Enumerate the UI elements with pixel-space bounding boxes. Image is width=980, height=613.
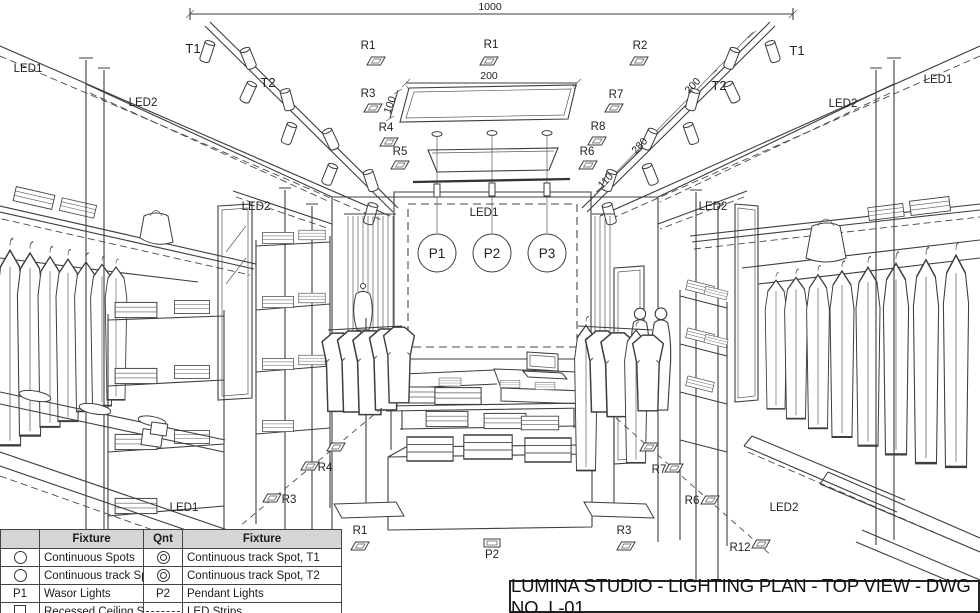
legend-header-cell: Fixture [183, 530, 342, 549]
callout-r12: R12 [729, 542, 750, 554]
recessed-spot-icon [391, 161, 409, 169]
legend-symbol-cell [144, 549, 183, 567]
callout-led2: LED2 [829, 98, 858, 110]
callout-r6: R6 [580, 146, 595, 158]
legend-fixture-cell: Pendant Lights [183, 585, 342, 603]
recessed-spot-icon [380, 138, 398, 146]
legend-symbol-cell [1, 549, 40, 567]
legend-symbol-cell: P2 [144, 585, 183, 603]
legend-row: Continuous track SpotsContinuous track S… [1, 567, 342, 585]
callout-t2: T2 [260, 75, 275, 90]
recessed-spot-icon [701, 496, 719, 504]
callout-led2: LED2 [770, 502, 799, 514]
recessed-spot-icon [301, 462, 319, 470]
lighting-plan-page: P1P2P3 1000200100200280110 LED1LED2T1T2R… [0, 0, 980, 613]
legend-fixture-cell: LED Strips [183, 603, 342, 613]
legend-fixture-cell: Recessed Ceiling Spot [40, 603, 144, 613]
legend-symbol-cell [144, 603, 183, 613]
recessed-spot-icon [617, 542, 635, 550]
legend-symbol-cell [1, 603, 40, 613]
legend-table: FixtureQntFixture Continuous SpotsContin… [0, 529, 342, 613]
legend-header-cell: Fixture [40, 530, 144, 549]
legend-row: Recessed Ceiling SpotLED Strips [1, 603, 342, 613]
callout-r1: R1 [484, 39, 499, 51]
pendant-label: P3 [539, 246, 556, 261]
dimension-texts: 1000200100200280110 [382, 1, 704, 191]
callout-led1: LED1 [470, 207, 499, 219]
legend-fixture-cell: Continuous Spots [40, 549, 144, 567]
callout-r4: R4 [318, 462, 333, 474]
left-spot-track [199, 22, 398, 226]
callout-r3: R3 [361, 88, 376, 100]
legend-header-cell [1, 530, 40, 549]
legend-symbol-cell: P1 [1, 585, 40, 603]
legend-fixture-cell: Continuous track Spot, T1 [183, 549, 342, 567]
left-garment-rack [322, 318, 414, 518]
pendant-label: P2 [484, 246, 501, 261]
callout-t1: T1 [185, 41, 200, 56]
callout-r6: R6 [685, 495, 700, 507]
callout-r4: R4 [379, 122, 394, 134]
recessed-spot-icon [605, 104, 623, 112]
title-block: LUMINA STUDIO - LIGHTING PLAN - TOP VIEW… [509, 580, 980, 613]
legend-fixture-cell: Continuous track Spot, T2 [183, 567, 342, 585]
legend-symbol-cell [1, 567, 40, 585]
title-block-text: LUMINA STUDIO - LIGHTING PLAN - TOP VIEW… [511, 575, 978, 613]
dimension-text: 200 [480, 70, 498, 82]
dimension-text: 200 [682, 75, 703, 96]
legend-fixture-cell: Wasor Lights [40, 585, 144, 603]
recessed-spot-icon [351, 542, 369, 550]
callout-led1: LED1 [170, 502, 199, 514]
legend-symbol-cell [144, 567, 183, 585]
center-furniture [386, 352, 592, 530]
recessed-spot-icon [480, 57, 498, 65]
callout-t2: T2 [711, 78, 726, 93]
pendant-circles: P1P2P3 [418, 234, 566, 272]
recessed-spot-icon [630, 57, 648, 65]
callout-p2: P2 [485, 549, 499, 561]
legend-row: P1Wasor LightsP2Pendant Lights [1, 585, 342, 603]
callout-led2: LED2 [129, 97, 158, 109]
recessed-spot-icon [263, 494, 281, 502]
recessed-spot-icon [364, 104, 382, 112]
callout-r1: R1 [353, 525, 368, 537]
pendant-floor-mark-icon [484, 539, 500, 547]
recessed-spot-icon [752, 540, 770, 548]
right-wall-unit [680, 58, 980, 600]
legend-fixture-cell: Continuous track Spots [40, 567, 144, 585]
legend-header-row: FixtureQntFixture [1, 530, 342, 549]
recessed-spot-icon [579, 161, 597, 169]
right-garment-rack [575, 317, 664, 519]
recessed-spot-icon [367, 57, 385, 65]
callout-t1: T1 [789, 43, 804, 58]
callout-r8: R8 [591, 121, 606, 133]
store-lighting-drawing: P1P2P3 1000200100200280110 LED1LED2T1T2R… [0, 0, 980, 613]
callout-led2: LED2 [699, 201, 728, 213]
callout-r7: R7 [609, 89, 624, 101]
callout-led1: LED1 [924, 74, 953, 86]
pendant-label: P1 [429, 246, 446, 261]
recessed-spot-icon [588, 137, 606, 145]
left-wall-unit [0, 58, 330, 600]
callout-led1: LED1 [14, 63, 43, 75]
callout-r5: R5 [393, 146, 408, 158]
callout-r2: R2 [633, 40, 648, 52]
callout-r7: R7 [652, 464, 667, 476]
legend-row: Continuous SpotsContinuous track Spot, T… [1, 549, 342, 567]
right-spot-track [582, 22, 781, 226]
legend-header-cell: Qnt [144, 530, 183, 549]
callout-r1: R1 [361, 40, 376, 52]
callout-r3: R3 [282, 494, 297, 506]
callout-r3: R3 [617, 525, 632, 537]
callout-led2: LED2 [242, 201, 271, 213]
ceiling-panel [386, 79, 581, 122]
dimension-text: 1000 [478, 1, 502, 13]
